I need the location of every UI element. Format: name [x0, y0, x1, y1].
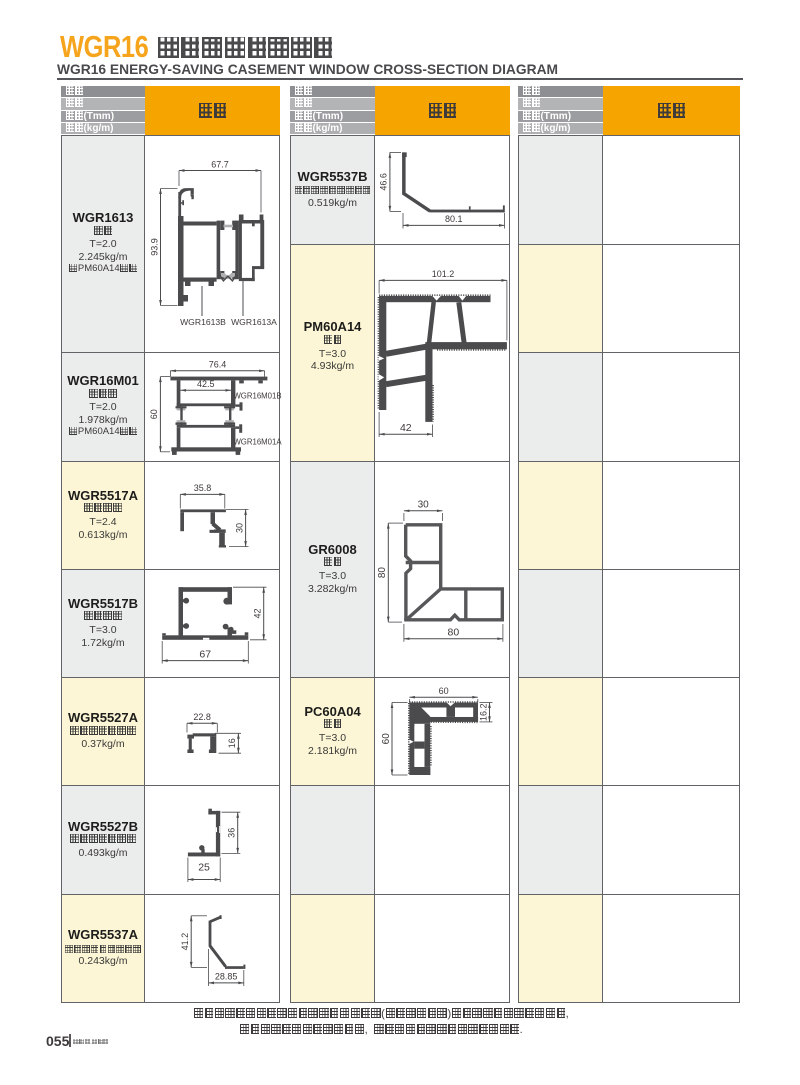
- svg-text:42: 42: [400, 422, 412, 434]
- svg-text:WGR1613B: WGR1613B: [180, 317, 226, 327]
- svg-text:25: 25: [198, 862, 210, 874]
- svg-text:76.4: 76.4: [209, 360, 227, 370]
- svg-text:101.2: 101.2: [432, 269, 455, 279]
- svg-text:60: 60: [439, 686, 449, 696]
- svg-text:93.9: 93.9: [149, 238, 159, 256]
- svg-text:80: 80: [448, 627, 460, 639]
- svg-text:35.8: 35.8: [194, 483, 212, 493]
- svg-text:28.85: 28.85: [215, 972, 238, 982]
- svg-text:22.8: 22.8: [193, 712, 211, 722]
- svg-text:WGR16M01B: WGR16M01B: [233, 392, 281, 401]
- svg-text:67.7: 67.7: [211, 159, 229, 169]
- svg-text:WGR16M01A: WGR16M01A: [233, 438, 282, 447]
- svg-text:30: 30: [418, 500, 430, 511]
- svg-text:67: 67: [199, 648, 211, 660]
- svg-text:16.2: 16.2: [478, 703, 488, 721]
- svg-text:WGR1613A: WGR1613A: [231, 317, 277, 327]
- svg-text:41.2: 41.2: [180, 933, 190, 951]
- svg-text:30: 30: [234, 523, 244, 533]
- svg-text:80.1: 80.1: [445, 214, 463, 224]
- svg-text:60: 60: [149, 409, 159, 419]
- svg-text:60: 60: [381, 733, 392, 745]
- svg-text:42.5: 42.5: [197, 379, 215, 389]
- svg-text:46.6: 46.6: [379, 173, 389, 191]
- svg-text:42: 42: [253, 608, 263, 618]
- svg-text:80: 80: [377, 567, 388, 579]
- svg-text:36: 36: [227, 828, 237, 838]
- svg-text:16: 16: [227, 738, 237, 748]
